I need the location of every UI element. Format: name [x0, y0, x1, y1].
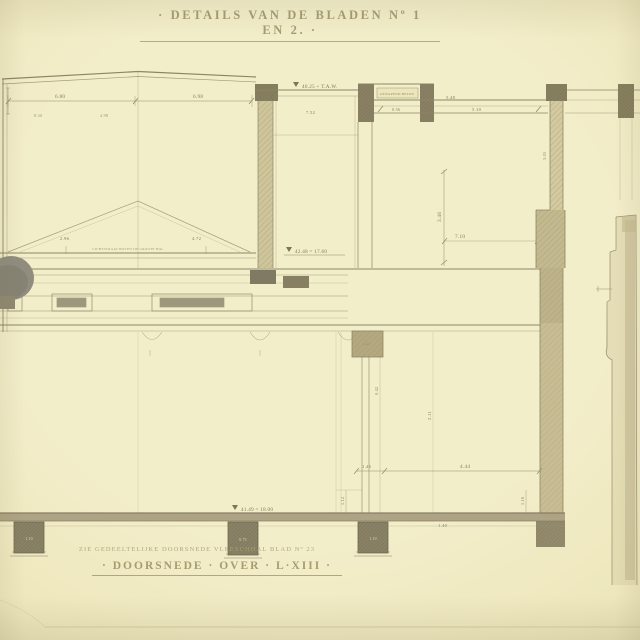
band-scallop-marks — [142, 332, 358, 356]
wall-profile-detail — [596, 215, 637, 585]
right-room-dims — [441, 169, 540, 266]
dim-axis: 2.11 — [427, 411, 432, 420]
section-caption-text: · DOORSNEDE · OVER · L·XIII · — [92, 560, 342, 576]
far-right-roof-block — [618, 84, 634, 118]
dim-top-room-width: 7.52 — [306, 110, 316, 115]
level-top-text: 40.25 + T.A.W. — [302, 84, 338, 90]
dim-room-width: 7.10 — [455, 234, 465, 240]
base-dimension-line — [346, 468, 542, 513]
dim-base-mid: 4.44 — [460, 464, 470, 470]
pier-mid-label: 0.75 — [239, 538, 246, 542]
column-capital-blob — [0, 256, 34, 309]
dim-hall-small-b: 4.98 — [100, 113, 108, 118]
dim-gable-right: 4.72 — [192, 236, 202, 241]
girder-panels — [8, 294, 252, 311]
lantern-label: GEWAPEND BETON — [380, 92, 415, 96]
level-marker-top: 40.25 + T.A.W. — [290, 82, 352, 90]
right-wall — [536, 84, 567, 547]
girder-dark-blocks — [250, 270, 309, 288]
level-marker-ground: 41.49 = 18.00 — [232, 505, 273, 513]
dim-roof-right: 6.98 — [193, 94, 203, 100]
level-marker-mid: 42.48 = 17.60 — [284, 247, 345, 255]
dim-hall-small-a: 8.30 — [34, 113, 42, 118]
skylight-annotation: LICHTSTRAAT BOVEN DE GROOTE HAL — [92, 247, 163, 251]
mid-wall-column: 0.45 — [336, 122, 433, 513]
section-caption: · DOORSNEDE · OVER · L·XIII · — [92, 560, 342, 576]
footer-note: ZIE GEDEELTELIJKE DOORSNEDE VLEESCHHAL B… — [62, 546, 332, 553]
dim-attic-width: 5.48 — [446, 95, 456, 100]
dim-room-height: 3.46 — [437, 212, 443, 222]
right-upper-floor — [374, 90, 640, 200]
pier-left-label: 1.10 — [25, 537, 32, 541]
skylight-gable — [0, 71, 256, 513]
pier-right-label: 1.10 — [369, 537, 376, 541]
dim-column: 0.42 — [374, 387, 379, 395]
dim-wall-height: 3.05 — [542, 152, 547, 160]
paper-crease-lines — [0, 600, 640, 627]
dim-v-left: 1.12 — [340, 497, 345, 505]
ground-line — [0, 513, 565, 526]
dim-base-left: 1.45 — [362, 464, 372, 469]
level-ground-text: 41.49 = 18.00 — [241, 507, 273, 513]
dim-v-right: 1.16 — [520, 497, 525, 505]
hall-roof-outline — [2, 72, 256, 333]
dim-floor-small: 0.56 — [392, 107, 400, 112]
dim-roof-left: 6.80 — [55, 94, 65, 100]
mid-wall-left — [255, 84, 278, 268]
level-mid-text: 42.48 = 17.60 — [295, 249, 327, 255]
capital-label: 0.45 — [364, 342, 371, 346]
dim-base-small: 1.40 — [438, 523, 448, 528]
section-drawing: 6.80 6.98 8.30 4.98 2.96 4.72 LICHTSTRAA… — [0, 0, 640, 640]
architectural-drawing-photo: · DETAILS VAN DE BLADEN Nº 1 EN 2. · 6.8… — [0, 0, 640, 640]
roof-lantern: GEWAPEND BETON — [358, 84, 434, 122]
dim-floor-right: 5.10 — [472, 107, 482, 112]
roof-dimension-line — [6, 95, 254, 107]
dim-gable-left: 2.96 — [60, 236, 70, 241]
